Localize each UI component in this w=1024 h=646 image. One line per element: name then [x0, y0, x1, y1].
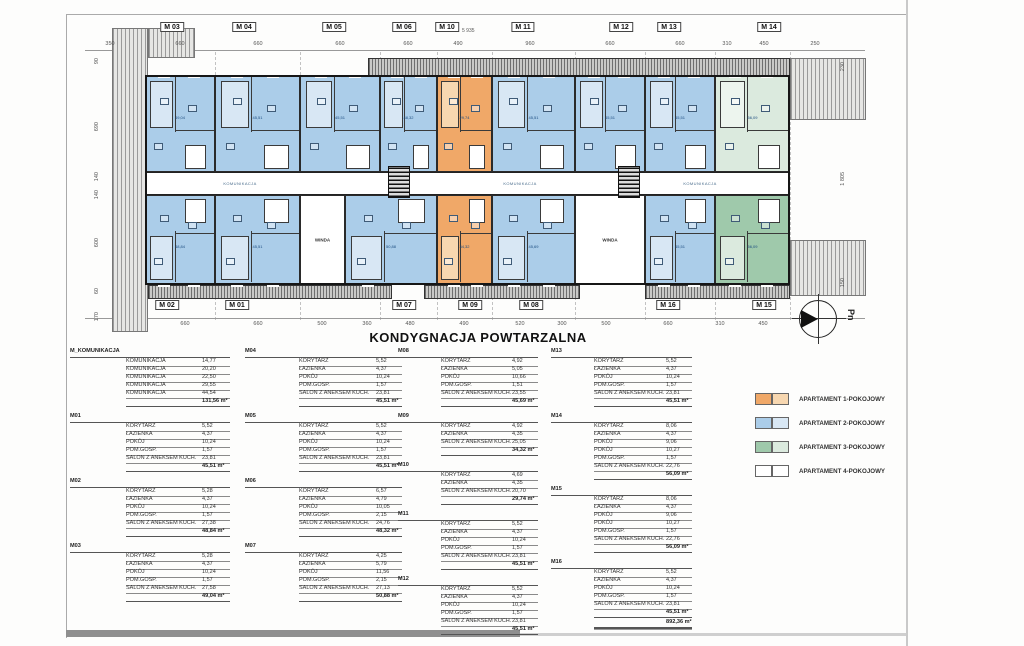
- room-name: ŁAZIENKA: [299, 366, 326, 372]
- room-name: POKÓJ: [594, 520, 613, 526]
- table-total: 48,32 m²: [299, 528, 402, 537]
- room-name: POM.GOSP.: [441, 545, 472, 551]
- room-name: SALON Z ANEKSEM KUCH.: [594, 601, 664, 607]
- legend-label: APARTAMENT 1-POKOJOWY: [799, 396, 885, 403]
- table-total: 45,51 m²: [441, 561, 538, 570]
- room-name: POKÓJ: [594, 447, 613, 453]
- room-name: POM.GOSP.: [126, 577, 157, 583]
- legend-swatch-light: [772, 465, 789, 477]
- room-name: POKÓJ: [594, 512, 613, 518]
- room-name: ŁAZIENKA: [441, 529, 468, 535]
- room-area: 4,37: [666, 577, 677, 583]
- room-area: 4,37: [666, 431, 677, 437]
- room-name: ŁAZIENKA: [441, 431, 468, 437]
- legend-swatch-light: [772, 441, 789, 453]
- room-area: 1,57: [512, 610, 523, 616]
- room-area: 2,15: [376, 577, 387, 583]
- room-area: 1,57: [202, 512, 213, 518]
- room-name: POKÓJ: [594, 585, 613, 591]
- room-area: 1,57: [376, 382, 387, 388]
- room-area: 22,76: [666, 536, 680, 542]
- room-area: 23,81: [666, 390, 680, 396]
- legend-item: APARTAMENT 1-POKOJOWY: [755, 393, 955, 407]
- room-name: KORYTARZ: [441, 586, 470, 592]
- room-name: SALON Z ANEKSEM KUCH.: [126, 585, 196, 591]
- room-name: SALON Z ANEKSEM KUCH.: [594, 463, 664, 469]
- room-area: 1,57: [202, 447, 213, 453]
- room-area: 10,24: [666, 374, 680, 380]
- room-name: POKÓJ: [594, 439, 613, 445]
- total-area: 50,88 m²: [376, 593, 398, 599]
- table-total: 29,74 m²: [441, 496, 538, 505]
- room-name: KORYTARZ: [441, 423, 470, 429]
- room-area: 4,35: [512, 431, 523, 437]
- room-name: POKÓJ: [126, 569, 145, 575]
- room-name: POM.GOSP.: [126, 447, 157, 453]
- room-name: ŁAZIENKA: [299, 561, 326, 567]
- area-table-header-M05: M05: [245, 413, 402, 423]
- room-name: POKÓJ: [299, 374, 318, 380]
- total-area: 49,04 m²: [202, 593, 224, 599]
- room-area: 10,24: [512, 537, 526, 543]
- room-name: SALON Z ANEKSEM KUCH.: [441, 618, 511, 624]
- room-name: KORYTARZ: [594, 358, 623, 364]
- area-table-header-M04: M04: [245, 348, 402, 358]
- room-area: 4,69: [512, 472, 523, 478]
- room-area: 5,52: [376, 358, 387, 364]
- room-area: 23,81: [512, 553, 526, 559]
- legend-label: APARTAMENT 2-POKOJOWY: [799, 420, 885, 427]
- room-name: POM.GOSP.: [594, 455, 625, 461]
- room-name: ŁAZIENKA: [441, 366, 468, 372]
- total-area: 48,32 m²: [376, 528, 398, 534]
- area-table-header-M06: M06: [245, 478, 402, 488]
- area-table-header-M07: M07: [245, 543, 402, 553]
- legend-swatch-light: [772, 417, 789, 429]
- compass-needle-icon: [801, 310, 818, 328]
- room-name: ŁAZIENKA: [441, 594, 468, 600]
- room-area: 20,20: [202, 366, 216, 372]
- total-area: 45,51 m²: [512, 561, 534, 567]
- room-area: 27,58: [202, 585, 216, 591]
- room-area: 23,55: [512, 390, 526, 396]
- room-area: 5,79: [376, 561, 387, 567]
- room-area: 1,57: [666, 382, 677, 388]
- room-area: 4,37: [376, 366, 387, 372]
- room-area: 10,24: [202, 569, 216, 575]
- room-name: POKÓJ: [441, 602, 460, 608]
- table-total: 49,04 m²: [126, 593, 230, 602]
- table-total: 50,88 m²: [299, 593, 402, 602]
- room-area: 9,06: [666, 439, 677, 445]
- room-area: 23,81: [376, 455, 390, 461]
- room-name: SALON Z ANEKSEM KUCH.: [299, 455, 369, 461]
- room-name: POM.GOSP.: [441, 382, 472, 388]
- room-area: 10,24: [202, 439, 216, 445]
- room-name: POM.GOSP.: [594, 382, 625, 388]
- legend-swatch-main: [755, 441, 772, 453]
- room-name: POKÓJ: [299, 504, 318, 510]
- area-table-header-M12: M12: [398, 576, 538, 586]
- area-table-header-M01: M01: [70, 413, 230, 423]
- room-name: ŁAZIENKA: [594, 366, 621, 372]
- total-area: 45,51 m²: [512, 626, 534, 632]
- area-table-header-M13: M13: [551, 348, 692, 358]
- room-area: 1,57: [666, 455, 677, 461]
- area-table-header-M08: M08: [398, 348, 538, 358]
- room-area: 5,05: [512, 366, 523, 372]
- total-area: 45,51 m²: [376, 398, 398, 404]
- room-name: POM.GOSP.: [594, 528, 625, 534]
- room-name: ŁAZIENKA: [594, 577, 621, 583]
- room-name: POKÓJ: [594, 374, 613, 380]
- room-area: 10,24: [376, 439, 390, 445]
- total-area: 45,69 m²: [512, 398, 534, 404]
- grand-total: 892,36 m²: [594, 619, 692, 628]
- room-area: 20,70: [512, 488, 526, 494]
- room-area: 22,50: [202, 374, 216, 380]
- room-area: 5,52: [202, 423, 213, 429]
- room-name: SALON Z ANEKSEM KUCH.: [441, 553, 511, 559]
- total-area: 45,51 m²: [376, 463, 398, 469]
- room-area: 1,57: [202, 577, 213, 583]
- legend-item: APARTAMENT 2-POKOJOWY: [755, 417, 955, 431]
- room-name: POM.GOSP.: [441, 610, 472, 616]
- room-area: 27,13: [376, 585, 390, 591]
- room-area: 10,24: [666, 585, 680, 591]
- room-area: 22,76: [666, 463, 680, 469]
- room-name: KORYTARZ: [441, 358, 470, 364]
- room-area: 1,57: [376, 447, 387, 453]
- room-name: ŁAZIENKA: [594, 431, 621, 437]
- room-name: SALON Z ANEKSEM KUCH.: [299, 390, 369, 396]
- room-area: 2,15: [376, 512, 387, 518]
- table-total: 45,51 m²: [299, 463, 402, 472]
- area-table-header-M16: M16: [551, 559, 692, 569]
- total-area: 34,32 m²: [512, 447, 534, 453]
- legend-swatch-main: [755, 465, 772, 477]
- room-area: 23,81: [376, 390, 390, 396]
- room-area: 1,51: [512, 382, 523, 388]
- room-name: ŁAZIENKA: [441, 480, 468, 486]
- room-name: POM.GOSP.: [299, 382, 330, 388]
- room-name: KOMUNIKACJA: [126, 382, 166, 388]
- room-area: 44,54: [202, 390, 216, 396]
- room-name: POKÓJ: [299, 439, 318, 445]
- room-name: KOMUNIKACJA: [126, 358, 166, 364]
- table-total: 45,51 m²: [594, 609, 692, 618]
- room-name: SALON Z ANEKSEM KUCH.: [299, 585, 369, 591]
- room-area: 5,52: [666, 569, 677, 575]
- total-area: 131,56 m²: [202, 398, 228, 404]
- room-name: POKÓJ: [299, 569, 318, 575]
- room-area: 9,06: [666, 512, 677, 518]
- room-area: 4,37: [202, 496, 213, 502]
- room-area: 1,57: [666, 593, 677, 599]
- room-name: POM.GOSP.: [299, 512, 330, 518]
- room-name: ŁAZIENKA: [126, 431, 153, 437]
- room-name: ŁAZIENKA: [126, 561, 153, 567]
- room-name: KORYTARZ: [594, 496, 623, 502]
- legend-label: APARTAMENT 3-POKOJOWY: [799, 444, 885, 451]
- room-name: KORYTARZ: [299, 423, 328, 429]
- compass-axis-v: [818, 294, 819, 344]
- room-area: 1,57: [666, 528, 677, 534]
- room-name: ŁAZIENKA: [299, 496, 326, 502]
- room-area: 29,55: [202, 382, 216, 388]
- total-area: 29,74 m²: [512, 496, 534, 502]
- room-name: KORYTARZ: [126, 553, 155, 559]
- room-area: 5,28: [202, 553, 213, 559]
- room-area: 8,06: [666, 423, 677, 429]
- room-name: SALON Z ANEKSEM KUCH.: [126, 455, 196, 461]
- table-total: 45,51 m²: [126, 463, 230, 472]
- room-area: 4,92: [512, 358, 523, 364]
- room-name: SALON Z ANEKSEM KUCH.: [441, 488, 511, 494]
- table-total: 56,09 m²: [594, 544, 692, 553]
- grand-total-area: 892,36 m²: [666, 619, 692, 625]
- room-name: KORYTARZ: [299, 488, 328, 494]
- room-area: 4,37: [376, 431, 387, 437]
- room-area: 10,24: [376, 374, 390, 380]
- room-area: 4,35: [512, 480, 523, 486]
- table-total: 45,69 m²: [441, 398, 538, 407]
- room-name: POM.GOSP.: [299, 577, 330, 583]
- total-area: 56,09 m²: [666, 471, 688, 477]
- area-table-header-M09: M09: [398, 413, 538, 423]
- total-area: 48,84 m²: [202, 528, 224, 534]
- room-area: 23,81: [666, 601, 680, 607]
- legend: APARTAMENT 1-POKOJOWYAPARTAMENT 2-POKOJO…: [755, 393, 955, 483]
- total-area: 45,51 m²: [666, 609, 688, 615]
- room-area: 4,37: [666, 366, 677, 372]
- area-table-header-M_KOMUNIKACJA: M_KOMUNIKACJA: [70, 348, 230, 358]
- area-table-header-M11: M11: [398, 511, 538, 521]
- room-name: KORYTARZ: [441, 472, 470, 478]
- room-name: ŁAZIENKA: [299, 431, 326, 437]
- room-area: 4,92: [512, 423, 523, 429]
- legend-swatch-light: [772, 393, 789, 405]
- north-label: Pn: [846, 309, 856, 321]
- room-name: KORYTARZ: [594, 423, 623, 429]
- room-area: 1,57: [512, 545, 523, 551]
- legend-item: APARTAMENT 4-POKOJOWY: [755, 465, 955, 479]
- total-area: 45,51 m²: [202, 463, 224, 469]
- room-area: 10,24: [512, 602, 526, 608]
- room-area: 10,27: [666, 520, 680, 526]
- room-area: 10,66: [512, 374, 526, 380]
- room-area: 24,76: [376, 520, 390, 526]
- room-area: 4,79: [376, 496, 387, 502]
- room-area: 11,56: [376, 569, 389, 575]
- room-name: KORYTARZ: [299, 358, 328, 364]
- room-name: SALON Z ANEKSEM KUCH.: [594, 536, 664, 542]
- room-area: 23,81: [202, 455, 216, 461]
- total-area: 56,09 m²: [666, 544, 688, 550]
- room-name: KOMUNIKACJA: [126, 374, 166, 380]
- room-name: POKÓJ: [126, 439, 145, 445]
- room-area: 6,57: [376, 488, 387, 494]
- legend-swatch-main: [755, 417, 772, 429]
- room-name: KORYTARZ: [299, 553, 328, 559]
- room-area: 8,06: [666, 496, 677, 502]
- room-area: 4,37: [202, 561, 213, 567]
- room-area: 10,05: [376, 504, 390, 510]
- area-table-header-M10: M10: [398, 462, 538, 472]
- table-total: 48,84 m²: [126, 528, 230, 537]
- room-area: 4,37: [512, 529, 523, 535]
- room-area: 23,81: [512, 618, 526, 624]
- table-total: 34,32 m²: [441, 447, 538, 456]
- room-name: POKÓJ: [441, 537, 460, 543]
- table-total: 45,51 m²: [299, 398, 402, 407]
- total-area: 45,51 m²: [666, 398, 688, 404]
- area-table-header-M02: M02: [70, 478, 230, 488]
- room-name: SALON Z ANEKSEM KUCH.: [441, 390, 511, 396]
- legend-swatch-main: [755, 393, 772, 405]
- floor-plan-sheet: KONDYGNACJA POWTARZALNA 49,0445,5145,514…: [0, 0, 1024, 646]
- area-table-header-M15: M15: [551, 486, 692, 496]
- room-name: ŁAZIENKA: [126, 496, 153, 502]
- room-area: 4,37: [512, 594, 523, 600]
- room-name: POKÓJ: [441, 374, 460, 380]
- room-name: KORYTARZ: [126, 423, 155, 429]
- area-table-header-M14: M14: [551, 413, 692, 423]
- room-name: POM.GOSP.: [594, 593, 625, 599]
- room-name: KOMUNIKACJA: [126, 366, 166, 372]
- table-total: 131,56 m²: [126, 398, 230, 407]
- room-area: 4,25: [376, 553, 387, 559]
- legend-label: APARTAMENT 4-POKOJOWY: [799, 468, 885, 475]
- north-arrow: Pn: [796, 297, 856, 341]
- room-name: POM.GOSP.: [126, 512, 157, 518]
- room-area: 5,52: [512, 586, 523, 592]
- room-area: 10,27: [666, 447, 680, 453]
- room-name: POM.GOSP.: [299, 447, 330, 453]
- room-area: 5,52: [512, 521, 523, 527]
- room-area: 4,37: [666, 504, 677, 510]
- room-area: 5,28: [202, 488, 213, 494]
- room-area: 27,38: [202, 520, 216, 526]
- area-tables: M_KOMUNIKACJAKOMUNIKACJA14,77KOMUNIKACJA…: [0, 0, 1024, 646]
- area-table-header-M03: M03: [70, 543, 230, 553]
- room-name: KORYTARZ: [126, 488, 155, 494]
- room-name: SALON Z ANEKSEM KUCH.: [126, 520, 196, 526]
- room-name: SALON Z ANEKSEM KUCH.: [441, 439, 511, 445]
- room-name: SALON Z ANEKSEM KUCH.: [594, 390, 664, 396]
- room-name: KORYTARZ: [441, 521, 470, 527]
- room-area: 14,77: [202, 358, 216, 364]
- room-area: 25,05: [512, 439, 526, 445]
- table-total: 45,51 m²: [441, 626, 538, 635]
- room-area: 10,24: [202, 504, 216, 510]
- table-total: 56,09 m²: [594, 471, 692, 480]
- table-total: 45,51 m²: [594, 398, 692, 407]
- room-name: POKÓJ: [126, 504, 145, 510]
- room-area: 5,52: [376, 423, 387, 429]
- room-name: KOMUNIKACJA: [126, 390, 166, 396]
- legend-item: APARTAMENT 3-POKOJOWY: [755, 441, 955, 455]
- room-name: ŁAZIENKA: [594, 504, 621, 510]
- room-area: 4,37: [202, 431, 213, 437]
- room-name: KORYTARZ: [594, 569, 623, 575]
- room-area: 5,52: [666, 358, 677, 364]
- room-name: SALON Z ANEKSEM KUCH.: [299, 520, 369, 526]
